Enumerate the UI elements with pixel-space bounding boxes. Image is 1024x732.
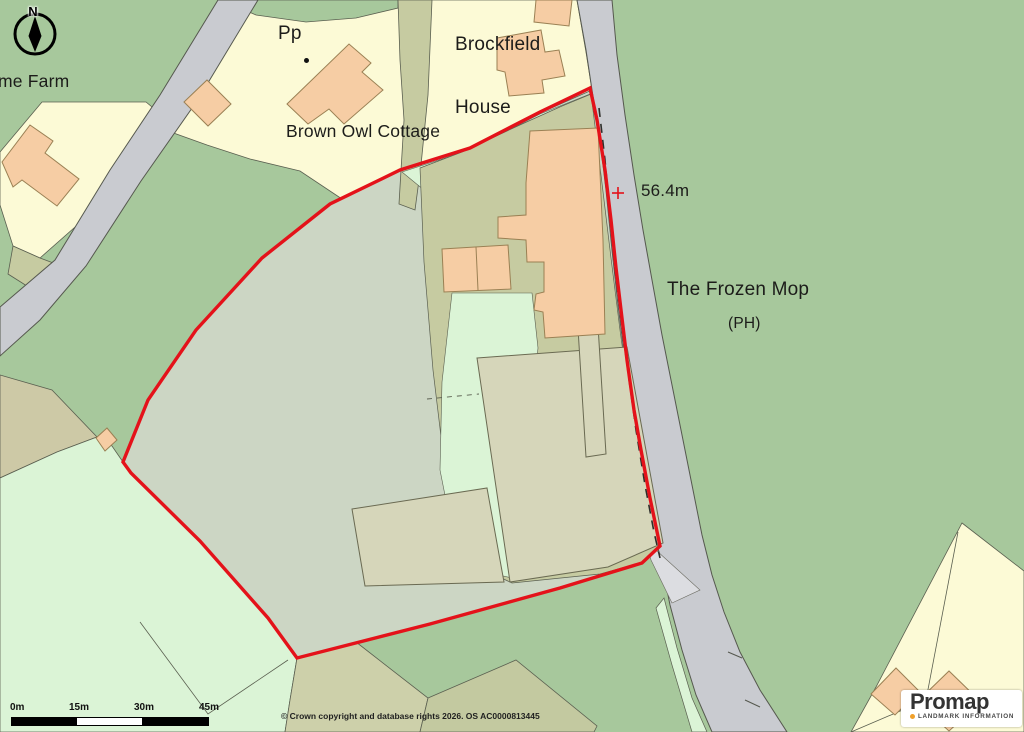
promap-tagline: LANDMARK INFORMATION	[918, 713, 1014, 720]
north-arrow-icon: N	[6, 4, 60, 60]
label-brockfield-house: Brockfield House	[455, 0, 540, 160]
label-pub-type: (PH)	[728, 315, 761, 332]
scale-segment	[142, 718, 208, 725]
copyright-notice: © Crown copyright and database rights 20…	[281, 712, 540, 721]
promap-logo: Promap LANDMARK INFORMATION	[901, 690, 1022, 727]
label-pp: Pp	[278, 24, 302, 45]
scale-segment	[77, 718, 142, 725]
scale-label-45: 45m	[199, 702, 219, 713]
label-farm: me Farm	[0, 72, 69, 91]
label-pub-name: The Frozen Mop	[667, 280, 809, 301]
scale-label-0: 0m	[10, 702, 24, 713]
label-spot-height: 56.4m	[641, 182, 689, 201]
scale-bar: 0m 15m 30m 45m	[0, 700, 240, 732]
label-brockfield-line2: House	[455, 97, 540, 118]
promap-brand: Promap	[910, 691, 1022, 713]
scale-segment	[12, 718, 77, 725]
landmark-dot-icon	[910, 714, 915, 719]
label-brown-owl-cottage: Brown Owl Cottage	[286, 122, 440, 141]
map-canvas[interactable]: N me Farm Pp Brown Owl Cottage Brockfiel…	[0, 0, 1024, 732]
scale-bar-graphic	[11, 717, 209, 726]
point-feature-dot	[304, 58, 309, 63]
scale-label-15: 15m	[69, 702, 89, 713]
scale-label-30: 30m	[134, 702, 154, 713]
label-brockfield-line1: Brockfield	[455, 34, 540, 55]
north-label: N	[6, 4, 60, 19]
